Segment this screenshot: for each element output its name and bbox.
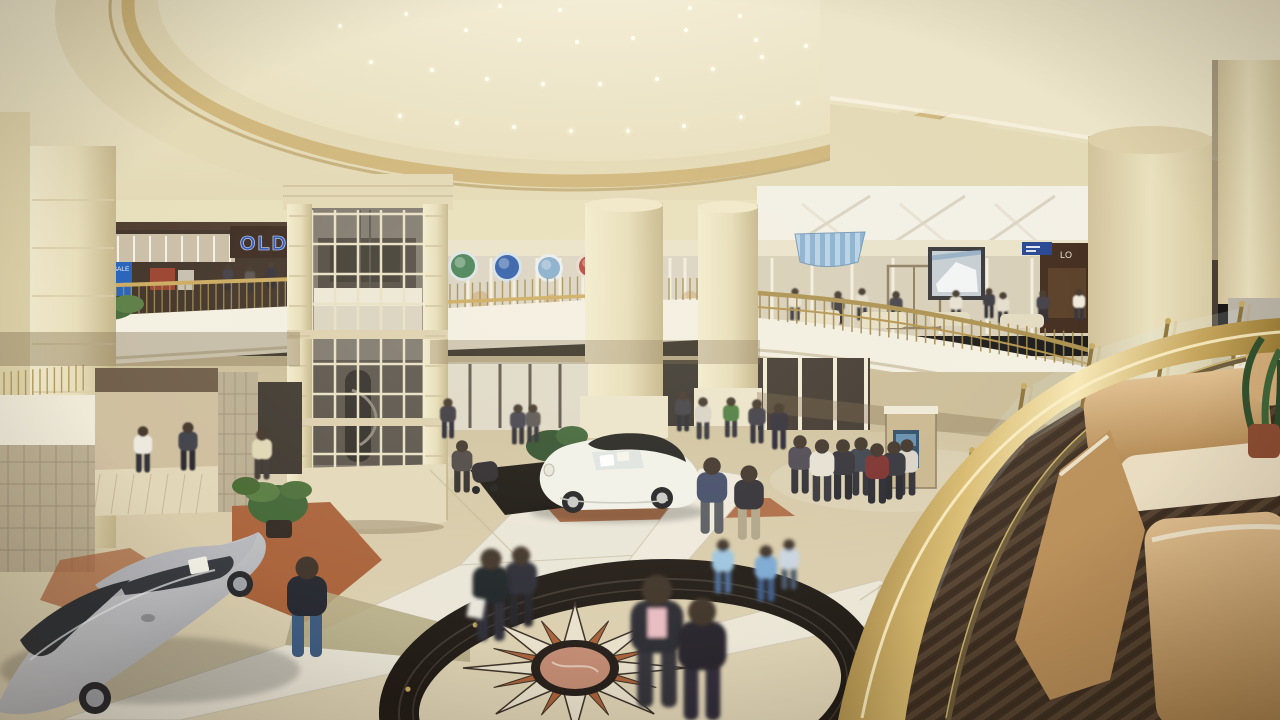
- vignette: [0, 0, 1280, 720]
- mall-scene: OLD SALE LO: [0, 0, 1280, 720]
- mall-atrium-photo: OLD SALE LO: [0, 0, 1280, 720]
